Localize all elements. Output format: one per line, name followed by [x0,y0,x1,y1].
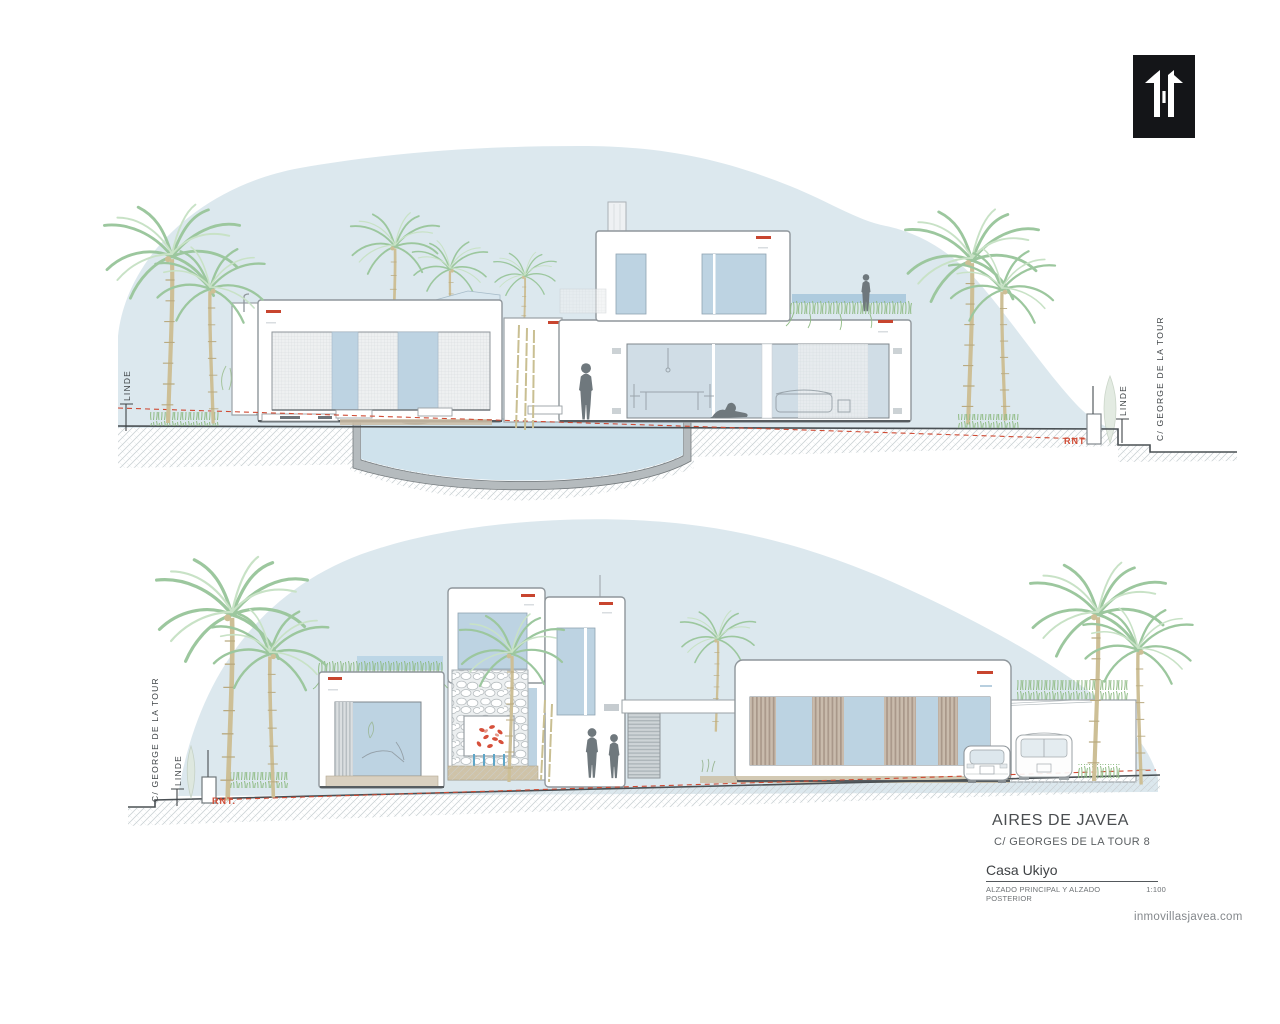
boundary-label-left: LINDE [122,370,132,401]
boundary-post [1087,386,1101,444]
sheet-scale: 1:100 [1146,885,1166,903]
drawing-sheet: LINDE LINDE C/ GEORGE DE LA TOUR RNT [0,0,1280,1024]
development-title: AIRES DE JAVEA [992,812,1196,830]
car-hatchback [964,746,1010,783]
project-name: Casa Ukiyo [986,862,1158,882]
street-label-left: C/ GEORGE DE LA TOUR [150,677,160,802]
title-block: AIRES DE JAVEA C/ GEORGES DE LA TOUR 8 C… [986,812,1196,903]
level-mark [878,320,893,323]
street-hatch [1118,445,1237,462]
address-line: C/ GEORGES DE LA TOUR 8 [994,836,1196,848]
boundary-label-left: LINDE [173,755,183,786]
level-mark [599,602,613,605]
car-suv [1016,733,1072,780]
entry-gate [628,712,660,778]
upper-elevation: LINDE LINDE C/ GEORGE DE LA TOUR RNT [104,146,1237,501]
rnt-label: RNT [1064,436,1086,446]
level-mark [328,677,342,680]
left-volume [258,300,502,422]
level-mark [756,236,771,239]
logo-monogram-icon [1133,55,1195,138]
boundary-label-right: LINDE [1118,385,1128,416]
level-mark [521,594,535,597]
lower-elevation: C/ GEORGE DE LA TOUR LINDE RNT. [128,519,1193,826]
sheet-title: ALZADO PRINCIPAL Y ALZADO POSTERIOR [986,885,1136,903]
level-mark [977,671,993,674]
website-url: inmovillasjavea.com [1134,911,1243,923]
stair-railing-mesh [560,289,606,313]
street-label-right: C/ GEORGE DE LA TOUR [1155,316,1165,441]
chimney [608,202,626,232]
left-volume [313,656,449,788]
company-logo [1133,55,1195,138]
level-mark [266,310,281,313]
rnt-label: RNT. [212,796,236,806]
